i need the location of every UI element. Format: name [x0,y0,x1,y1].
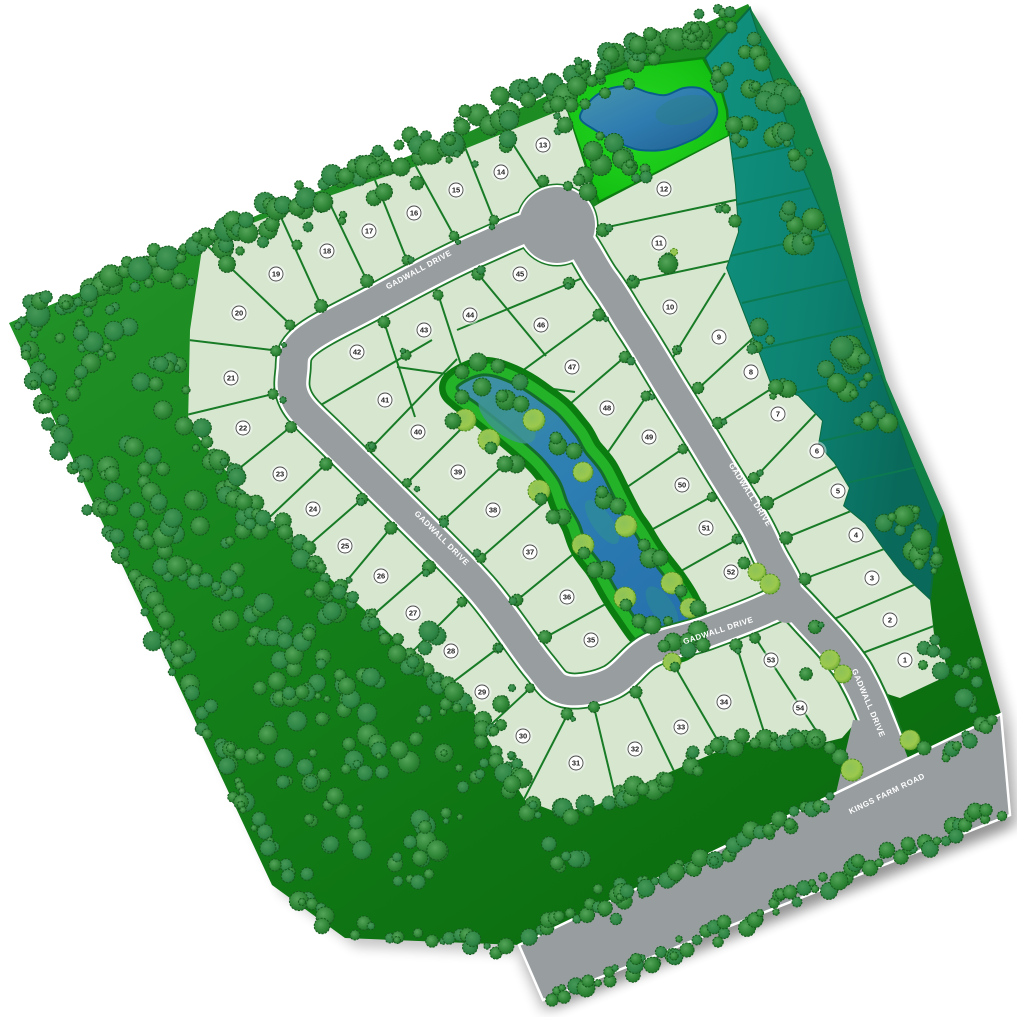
svg-text:34: 34 [720,698,729,707]
svg-text:6: 6 [815,447,819,456]
svg-text:24: 24 [309,505,318,514]
svg-text:16: 16 [410,209,418,218]
svg-text:51: 51 [702,524,710,533]
svg-text:32: 32 [631,745,639,754]
svg-text:45: 45 [516,270,524,279]
svg-text:23: 23 [276,470,284,479]
svg-text:28: 28 [447,647,455,656]
svg-text:54: 54 [796,704,805,713]
svg-text:26: 26 [377,572,385,581]
svg-text:15: 15 [452,186,460,195]
svg-text:3: 3 [870,574,874,583]
svg-text:5: 5 [836,487,840,496]
svg-text:40: 40 [414,428,422,437]
svg-text:35: 35 [587,636,595,645]
svg-text:9: 9 [717,333,721,342]
svg-text:20: 20 [235,309,243,318]
svg-text:31: 31 [572,759,580,768]
svg-text:27: 27 [409,609,417,618]
svg-text:38: 38 [489,506,497,515]
svg-text:49: 49 [645,433,653,442]
svg-text:19: 19 [272,270,280,279]
svg-text:7: 7 [776,410,780,419]
svg-text:14: 14 [497,168,506,177]
svg-text:21: 21 [227,374,235,383]
svg-text:46: 46 [537,321,545,330]
svg-text:25: 25 [341,542,349,551]
svg-text:47: 47 [568,363,576,372]
svg-text:50: 50 [678,481,686,490]
svg-text:18: 18 [323,247,331,256]
svg-text:10: 10 [666,303,674,312]
svg-text:1: 1 [903,656,907,665]
svg-text:52: 52 [727,568,735,577]
svg-text:33: 33 [677,723,685,732]
svg-text:37: 37 [526,548,534,557]
svg-text:11: 11 [655,239,663,248]
svg-text:53: 53 [767,656,775,665]
svg-text:29: 29 [478,688,486,697]
svg-text:48: 48 [603,404,611,413]
svg-text:43: 43 [420,326,428,335]
svg-text:8: 8 [749,368,753,377]
svg-text:22: 22 [239,424,247,433]
svg-text:41: 41 [381,396,389,405]
svg-text:17: 17 [365,227,373,236]
svg-text:30: 30 [519,732,527,741]
svg-text:39: 39 [454,468,462,477]
svg-text:2: 2 [888,616,892,625]
svg-text:44: 44 [466,311,475,320]
svg-text:42: 42 [353,348,361,357]
svg-text:12: 12 [660,185,668,194]
svg-text:36: 36 [563,593,571,602]
svg-text:13: 13 [539,141,547,150]
